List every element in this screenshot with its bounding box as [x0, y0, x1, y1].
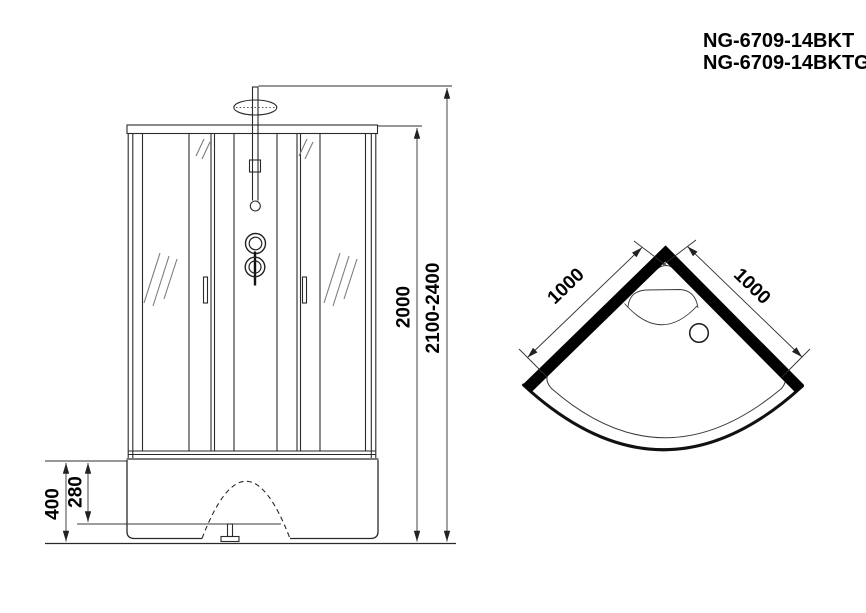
drain-hole — [690, 324, 709, 343]
shower-column — [234, 87, 277, 286]
riser-slider — [250, 160, 261, 172]
dim-label-height-glass: 2000 — [394, 286, 415, 328]
dim-label-base-inner-height: 280 — [66, 476, 87, 508]
front-view: 2000 2100-2400 400 280 — [43, 86, 457, 544]
model-title-line1: NG-6709-14BKT — [703, 30, 854, 52]
top-view: 1000 1000 — [519, 240, 810, 450]
glass-reflection-marks — [144, 139, 357, 306]
model-title-line2: NG-6709-14BKTG — [703, 52, 866, 74]
ext-line-end-left — [519, 349, 547, 377]
handshower-hook — [250, 201, 260, 211]
dim-label-base-height: 400 — [43, 488, 64, 520]
dim-label-side-left: 1000 — [544, 264, 589, 308]
tray-front — [77, 460, 378, 542]
door-handle-left — [204, 277, 208, 303]
tray-ledge-arc — [625, 304, 698, 325]
tray-foot-stem — [228, 524, 233, 537]
shower-cabin-technical-drawing: NG-6709-14BKT NG-6709-14BKTG — [0, 0, 866, 613]
curved-front-glass — [524, 385, 803, 450]
dim-label-height-total: 2100-2400 — [423, 263, 444, 354]
ext-line-end-right — [782, 349, 810, 377]
tray-foot-base — [221, 537, 239, 542]
drawing-canvas: NG-6709-14BKT NG-6709-14BKTG — [0, 0, 866, 613]
tray-ledge-contour — [628, 290, 698, 309]
drain-access-arch — [202, 481, 290, 538]
door-handle-right — [303, 277, 307, 303]
dim-line-side-left — [528, 248, 643, 358]
dim-label-side-right: 1000 — [729, 264, 774, 308]
